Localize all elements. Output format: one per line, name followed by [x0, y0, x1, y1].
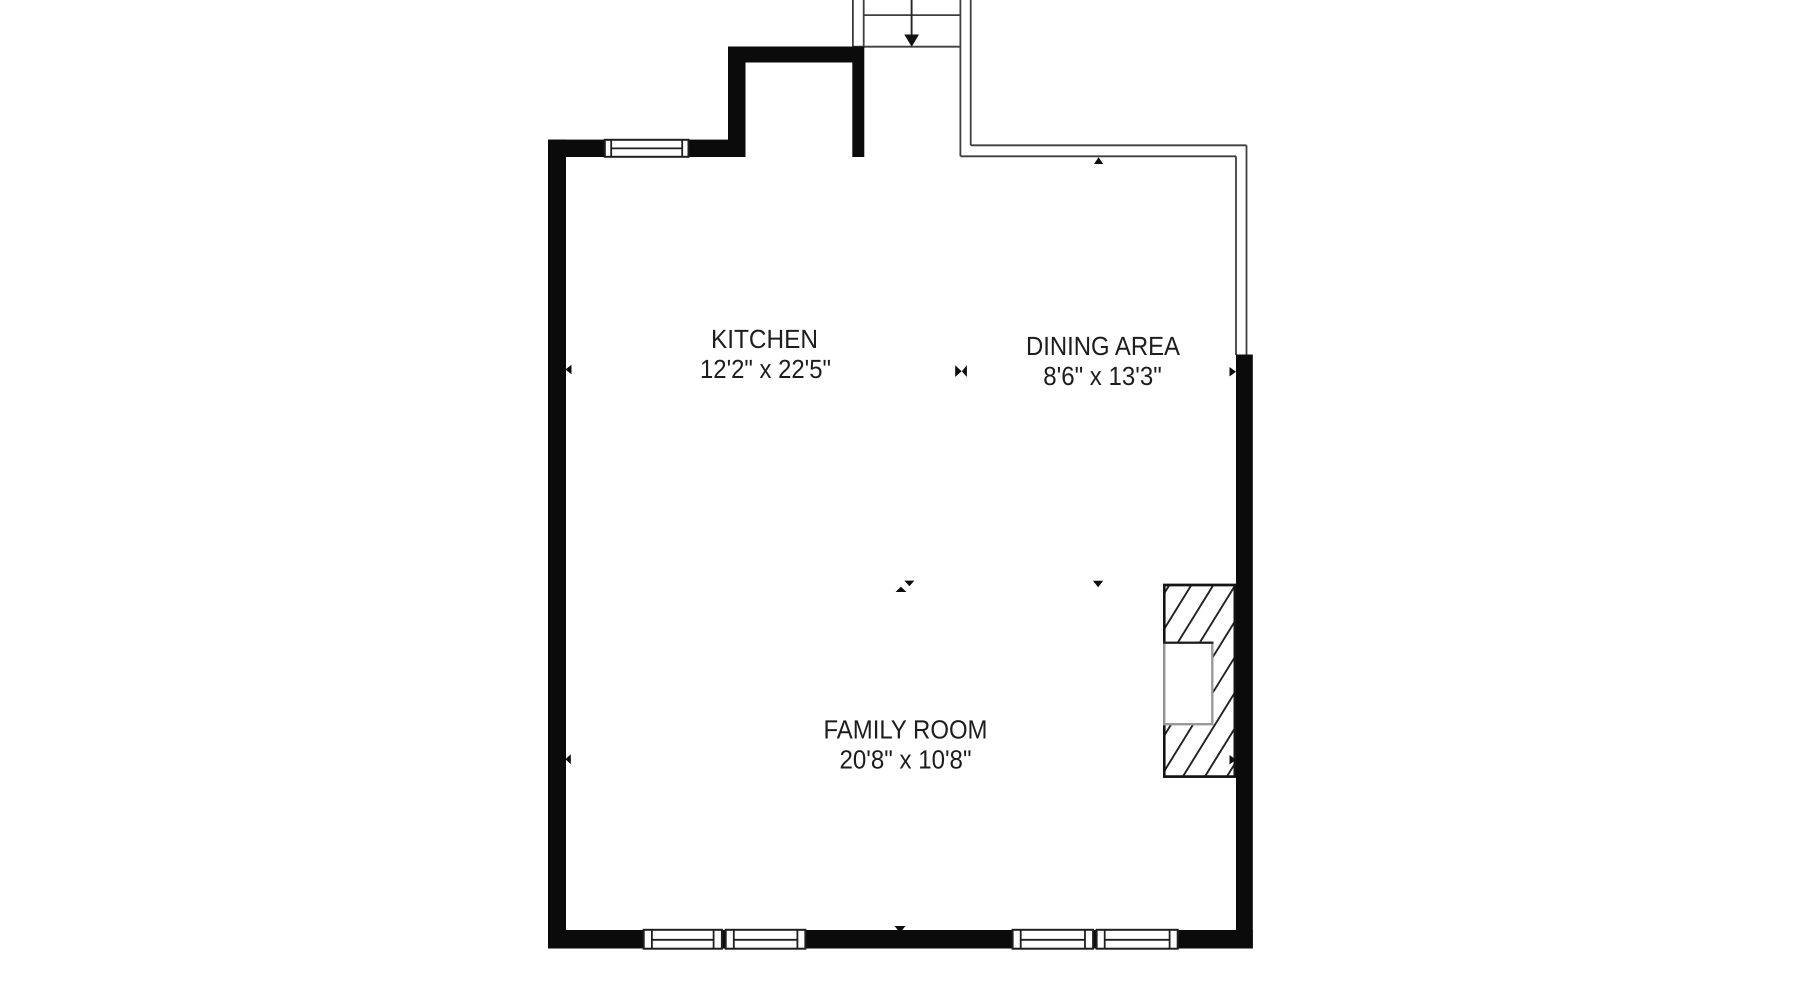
svg-text:DINING AREA: DINING AREA	[1026, 331, 1180, 361]
svg-text:20'8" x 10'8": 20'8" x 10'8"	[840, 744, 972, 774]
svg-text:FAMILY ROOM: FAMILY ROOM	[824, 714, 988, 744]
svg-text:8'6" x 13'3": 8'6" x 13'3"	[1043, 361, 1162, 391]
svg-text:KITCHEN: KITCHEN	[711, 324, 818, 354]
svg-text:12'2" x 22'5": 12'2" x 22'5"	[700, 354, 831, 384]
